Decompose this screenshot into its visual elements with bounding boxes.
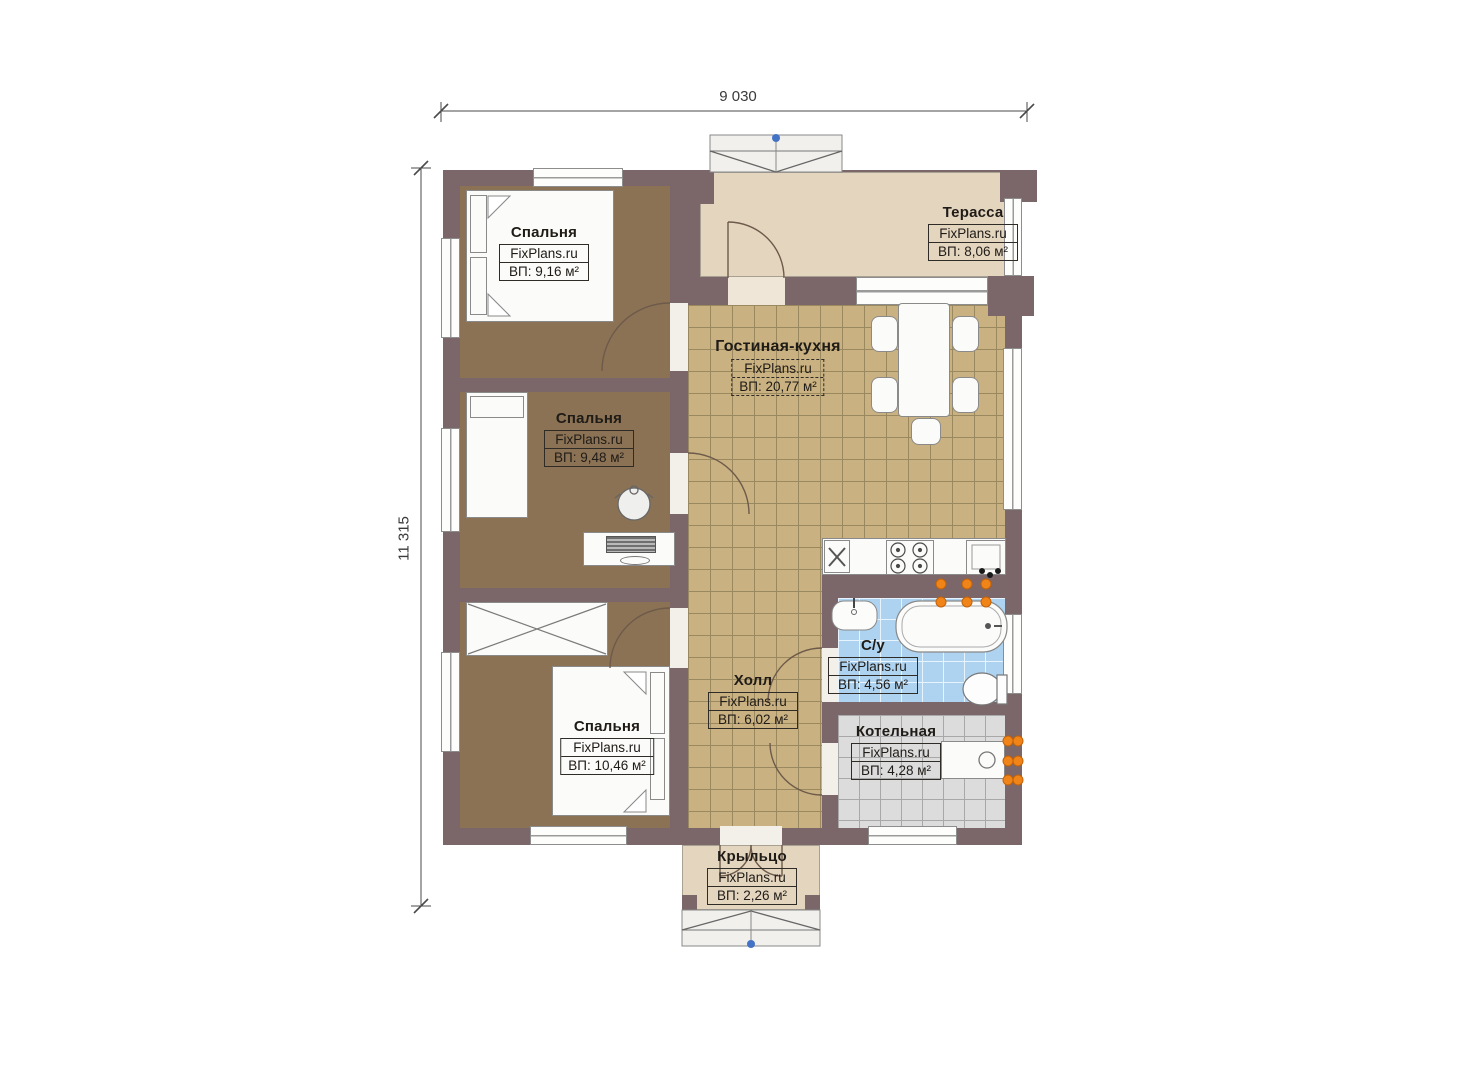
- dining-table: [898, 303, 950, 417]
- bedroom1-left-window: [441, 238, 460, 338]
- bedroom2-left-window: [441, 428, 460, 532]
- boiler-room-area: ВП: 4,28 м²: [852, 761, 940, 779]
- floor-plan-canvas: 9 030 11 315 Терасса FixPlans.ru ВП: 8,0…: [0, 0, 1474, 1080]
- bedroom2-info-box: FixPlans.ru ВП: 9,48 м²: [544, 430, 634, 467]
- boiler-door-opening: [822, 743, 838, 795]
- bedroom2-door-opening: [670, 453, 688, 514]
- boiler-room-info-box: FixPlans.ru ВП: 4,28 м²: [851, 743, 941, 780]
- bedroom3-left-window: [441, 652, 460, 752]
- bedroom3-bottom-window: [530, 826, 627, 845]
- top-canopy: [710, 134, 842, 172]
- living-kitchen-name: Гостиная-кухня: [715, 338, 840, 356]
- kitchen-sink-unit: [966, 540, 1006, 575]
- bedroom2-laptop: [606, 536, 656, 553]
- terrace-bottom-right-pilaster: [988, 276, 1034, 316]
- hall-area: ВП: 6,02 м²: [709, 710, 797, 728]
- bedroom1-area: ВП: 9,16 м²: [500, 262, 588, 280]
- dining-chair-right-1: [952, 316, 979, 352]
- bathroom-label: С/у FixPlans.ru ВП: 4,56 м²: [828, 637, 918, 694]
- living-kitchen-label: Гостиная-кухня FixPlans.ru ВП: 20,77 м²: [715, 338, 840, 396]
- bedroom1-label: Спальня FixPlans.ru ВП: 9,16 м²: [499, 224, 589, 281]
- dining-chair-bottom: [911, 418, 941, 445]
- brand-text: FixPlans.ru: [829, 658, 917, 675]
- living-kitchen-area: ВП: 20,77 м²: [732, 377, 824, 395]
- bedroom3-area: ВП: 10,46 м²: [561, 756, 653, 774]
- bedroom1-pillow-top: [470, 195, 487, 253]
- bathroom-info-box: FixPlans.ru ВП: 4,56 м²: [828, 657, 918, 694]
- dining-chair-left-2: [871, 377, 898, 413]
- brand-text: FixPlans.ru: [709, 693, 797, 710]
- terrace-left-wall-stub: [688, 170, 714, 204]
- brand-text: FixPlans.ru: [852, 744, 940, 761]
- hall-name: Холл: [708, 672, 798, 689]
- bedroom1-info-box: FixPlans.ru ВП: 9,16 м²: [499, 244, 589, 281]
- width-dimension-label: 9 030: [688, 88, 788, 105]
- boiler-room-label: Котельная FixPlans.ru ВП: 4,28 м²: [851, 723, 941, 780]
- bedroom2-pillow: [470, 396, 524, 418]
- bathroom-area: ВП: 4,56 м²: [829, 675, 917, 693]
- hall-info-box: FixPlans.ru ВП: 6,02 м²: [708, 692, 798, 729]
- brand-text: FixPlans.ru: [545, 431, 633, 448]
- living-kitchen-info-box: FixPlans.ru ВП: 20,77 м²: [731, 359, 825, 396]
- boiler-room-name: Котельная: [851, 723, 941, 740]
- porch-label: Крыльцо FixPlans.ru ВП: 2,26 м²: [707, 848, 797, 905]
- brand-text: FixPlans.ru: [708, 869, 796, 886]
- terrace-name: Терасса: [928, 204, 1018, 221]
- terrace-living-window: [856, 277, 988, 305]
- porch-canopy-marker-dot: [747, 940, 755, 948]
- front-door-opening: [720, 826, 782, 845]
- boiler-bottom-window: [868, 826, 957, 845]
- bedroom3-info-box: FixPlans.ru ВП: 10,46 м²: [560, 738, 654, 775]
- brand-text: FixPlans.ru: [561, 739, 653, 756]
- bedroom2-name: Спальня: [544, 410, 634, 427]
- terrace-area: ВП: 8,06 м²: [929, 242, 1017, 260]
- boiler-unit: [941, 741, 1005, 779]
- bedroom3-wardrobe: [466, 602, 608, 656]
- living-right-window: [1003, 348, 1022, 510]
- kitchen-fridge: [824, 540, 850, 573]
- porch-right-wall-stub: [805, 895, 820, 911]
- bedroom3-label: Спальня FixPlans.ru ВП: 10,46 м²: [560, 718, 654, 775]
- porch-left-wall-stub: [682, 895, 697, 911]
- hall-label: Холл FixPlans.ru ВП: 6,02 м²: [708, 672, 798, 729]
- bedroom2-area: ВП: 9,48 м²: [545, 448, 633, 466]
- brand-text: FixPlans.ru: [929, 225, 1017, 242]
- dining-chair-left-1: [871, 316, 898, 352]
- top-canopy-marker-dot: [772, 134, 780, 142]
- terrace-info-box: FixPlans.ru ВП: 8,06 м²: [928, 224, 1018, 261]
- bedroom1-name: Спальня: [499, 224, 589, 241]
- bedroom1-door-opening: [670, 303, 688, 371]
- porch-area: ВП: 2,26 м²: [708, 886, 796, 904]
- porch-info-box: FixPlans.ru ВП: 2,26 м²: [707, 868, 797, 905]
- bedroom3-door-opening: [670, 608, 688, 668]
- bedroom3-name: Спальня: [560, 718, 654, 735]
- kitchen-stove: [886, 540, 934, 575]
- bedroom2-mouse: [620, 556, 650, 565]
- bedroom1-top-window: [533, 168, 623, 187]
- bedroom1-pillow-bottom: [470, 257, 487, 315]
- bedroom2-label: Спальня FixPlans.ru ВП: 9,48 м²: [544, 410, 634, 467]
- terrace-label: Терасса FixPlans.ru ВП: 8,06 м²: [928, 204, 1018, 261]
- brand-text: FixPlans.ru: [500, 245, 588, 262]
- dining-chair-right-2: [952, 377, 979, 413]
- height-dimension-label: 11 315: [396, 499, 413, 579]
- bathroom-name: С/у: [828, 637, 918, 654]
- brand-text: FixPlans.ru: [732, 360, 824, 377]
- porch-name: Крыльцо: [707, 848, 797, 865]
- terrace-door-hinge-wall: [712, 277, 728, 305]
- bathroom-right-window: [1003, 614, 1022, 694]
- porch-canopy: [682, 910, 820, 948]
- terrace-door-opening: [728, 277, 785, 305]
